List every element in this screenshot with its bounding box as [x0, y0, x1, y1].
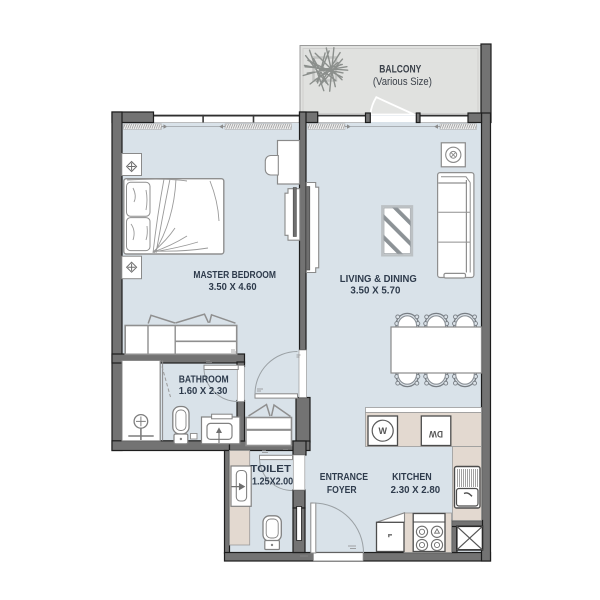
svg-text:W: W: [378, 426, 387, 436]
svg-text:1.60 X 2.30: 1.60 X 2.30: [179, 386, 228, 397]
svg-text:ENTRANCE: ENTRANCE: [320, 472, 369, 483]
svg-text:DW: DW: [429, 429, 443, 439]
svg-text:KITCHEN: KITCHEN: [392, 472, 432, 483]
svg-text:(Various Size): (Various Size): [373, 76, 432, 88]
svg-text:LIVING & DINING: LIVING & DINING: [340, 274, 417, 285]
svg-text:MASTER BEDROOM: MASTER BEDROOM: [193, 270, 276, 281]
svg-text:BALCONY: BALCONY: [379, 64, 422, 76]
svg-text:1.25X2.00: 1.25X2.00: [252, 476, 293, 488]
svg-text:3.50 X 5.70: 3.50 X 5.70: [350, 286, 401, 297]
svg-text:TOILET: TOILET: [250, 463, 291, 475]
svg-text:FOYER: FOYER: [327, 485, 357, 496]
svg-text:BATHROOM: BATHROOM: [179, 374, 229, 385]
svg-text:2.30 X 2.80: 2.30 X 2.80: [391, 485, 441, 496]
svg-text:3.50 X 4.60: 3.50 X 4.60: [209, 282, 258, 293]
